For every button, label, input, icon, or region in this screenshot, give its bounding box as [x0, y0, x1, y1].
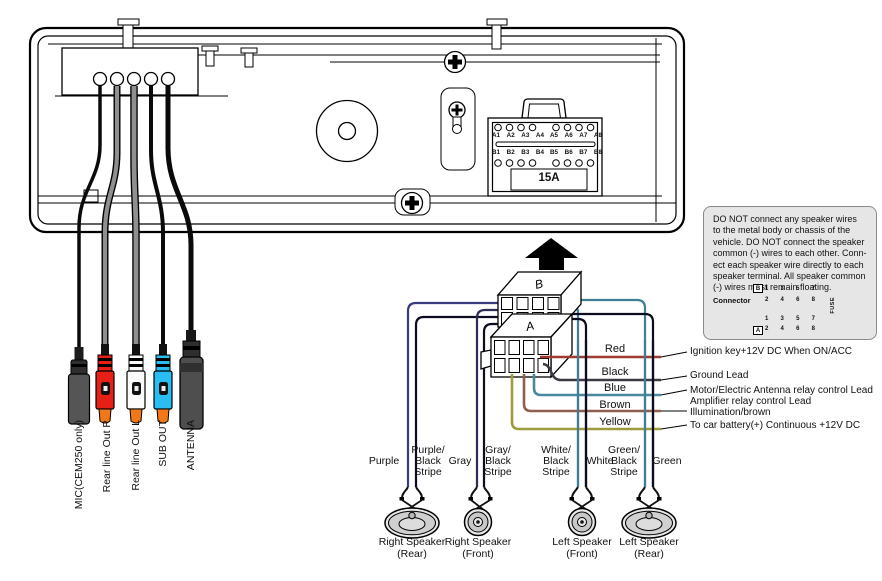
speaker-terminals [400, 487, 662, 514]
label-antenna: ANTENNA [185, 420, 197, 470]
speaker-right-front [465, 509, 492, 536]
speaker4-wire-right: Green [645, 456, 689, 467]
speaker2-wire-right: Gray/ Black Stripe [476, 445, 520, 478]
rca-plug-sub-out [154, 344, 172, 423]
pin-labels-a1-a4: A1A2A3A4 [492, 132, 544, 139]
speaker2-name: Right Speaker (Front) [428, 536, 528, 560]
pin-labels-b5-b8: B5B6B7B8 [550, 149, 602, 156]
keyhole-screw [441, 88, 475, 170]
rca-plug-rear-right [96, 344, 114, 423]
label-rear-line-out-r: Rear line Out R [101, 420, 113, 492]
label-mic: MIC(CEM250 only) [73, 420, 85, 509]
annotation-amp-relay: Amplifier relay control Lead [690, 396, 811, 407]
annotation-illumination: Illumination/brown [690, 407, 771, 418]
speaker1-wire-left: Purple [362, 456, 406, 467]
screw-top [445, 52, 466, 73]
fuse-rating-label: 15A [511, 172, 587, 184]
note-fuse-label: FUSE [830, 297, 836, 314]
plug-in-arrow [525, 238, 578, 270]
note-block-b-tab: B [753, 284, 763, 293]
antenna-plug [180, 330, 203, 429]
label-sub-out: SUB OUT [157, 420, 169, 467]
annotation-antenna-relay: Motor/Electric Antenna relay control Lea… [690, 385, 873, 396]
pin-labels-a5-a8: A5A6A7A8 [550, 132, 602, 139]
speaker4-wire-left: Green/ Black Stripe [602, 445, 646, 478]
pin-labels-b1-b4: B1B2B3B4 [492, 149, 544, 156]
screw-bottom [395, 189, 430, 215]
speaker3-wire-left: White/ Black Stripe [534, 445, 578, 478]
wiring-diagram: B A [0, 0, 882, 581]
wire-label-yellow: Yellow [580, 416, 650, 428]
annotation-ignition: Ignition key+12V DC When ON/ACC [690, 346, 852, 357]
annotation-ground: Ground Lead [690, 370, 748, 381]
wire-label-blue: Blue [580, 382, 650, 394]
mic-plug [69, 347, 90, 424]
wire-label-black: Black [580, 366, 650, 378]
note-b-pins-top: 1357 [765, 285, 815, 294]
connector-caption: Connector [713, 296, 751, 305]
wire-label-red: Red [580, 343, 650, 355]
rca-plug-rear-left [127, 344, 145, 423]
annotation-battery: To car battery(+) Continuous +12V DC [690, 420, 860, 431]
head-unit [30, 19, 684, 232]
note-a-pins-bottom: 2468 [765, 325, 815, 334]
wire-label-brown: Brown [580, 399, 650, 411]
speaker-right-rear [385, 508, 439, 538]
note-a-pins-top: 1357 [765, 315, 815, 324]
speaker4-name: Left Speaker (Rear) [599, 536, 699, 560]
label-rear-line-out-l: Rear line Out L [130, 420, 142, 491]
speaker-left-rear [622, 508, 676, 538]
note-block-a-tab: A [753, 326, 763, 335]
speaker-left-front [569, 509, 596, 536]
warning-note-text: DO NOT connect any speaker wires to the … [713, 214, 867, 294]
note-b-pins-bottom: 2468 [765, 296, 815, 305]
